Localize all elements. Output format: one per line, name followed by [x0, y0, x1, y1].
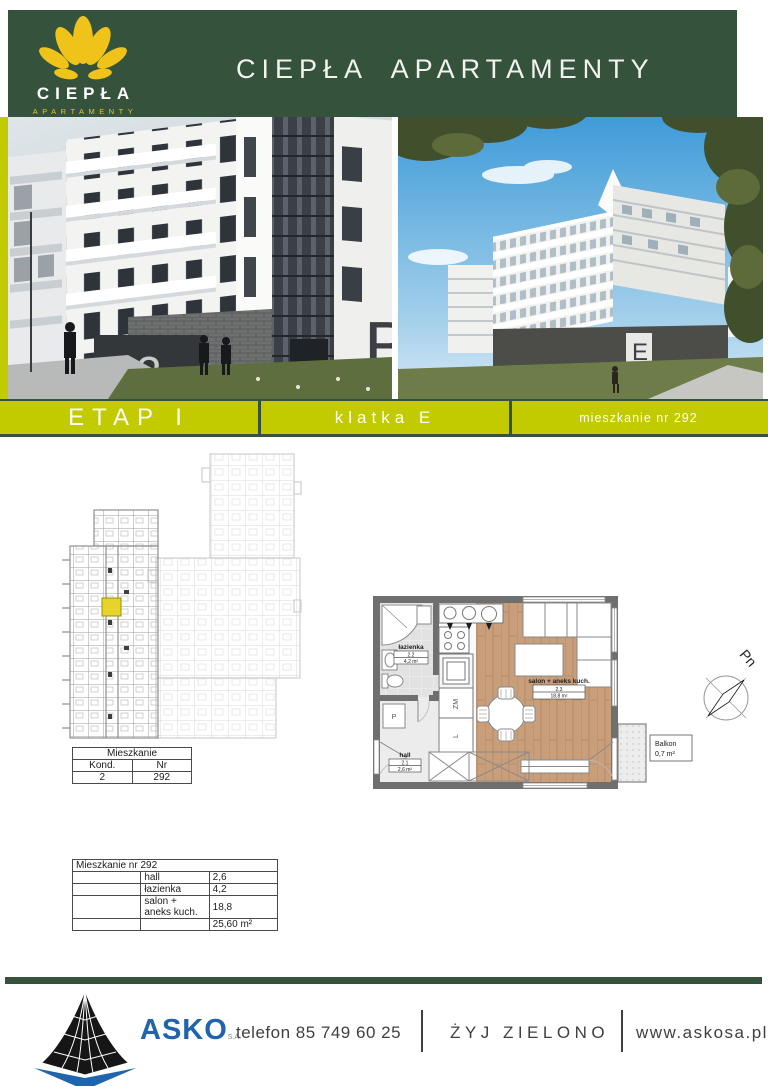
details-empty-cell — [73, 884, 141, 896]
hall-area: 2,6 m² — [398, 767, 413, 773]
details-empty-cell — [73, 896, 141, 919]
bathroom-label: łazienka — [398, 644, 424, 651]
flyer-page: CIEPŁA APARTAMENTY CIEPŁA APARTAMENTY — [0, 0, 768, 1087]
footer-phone: telefon 85 749 60 25 — [236, 1023, 401, 1043]
details-room-name: łazienka — [141, 884, 209, 896]
apartment-floor-plan: P ZM L — [373, 592, 693, 812]
details-empty-cell — [73, 872, 141, 884]
building-render-aerial-view: E — [398, 117, 763, 399]
location-nr-value: 292 — [132, 772, 192, 784]
details-empty-cell — [73, 919, 141, 931]
lotus-flower-icon — [28, 12, 138, 86]
banner-mieszkanie: mieszkanie nr 292 — [509, 401, 765, 434]
balcony-label: Balkon — [655, 741, 677, 748]
logo-subtitle: APARTAMENTY — [18, 107, 148, 116]
page-title: CIEPŁA APARTAMENTY — [236, 54, 655, 85]
location-table: Mieszkanie Kond. Nr 2 292 — [72, 747, 192, 784]
details-room-name: salon + aneks kuch. — [141, 896, 209, 919]
details-room-value: 2,6 — [209, 872, 277, 884]
dishwasher-label: ZM — [453, 699, 460, 709]
details-room-value: 4,2 — [209, 884, 277, 896]
asko-building-icon — [28, 990, 140, 1087]
hall-number: 2.1 — [402, 761, 409, 767]
banner-bars: ETAP I klatka E mieszkanie nr 292 — [0, 399, 768, 437]
details-total-area: 25,60 m² — [209, 919, 277, 931]
yellow-side-strip — [0, 117, 8, 399]
footer-divider-bar — [5, 977, 762, 984]
details-room-value: 18,8 — [209, 896, 277, 919]
fridge-label: L — [453, 734, 460, 738]
highlighted-unit-292 — [102, 598, 121, 616]
asko-brand-name: ASKOS.A. — [140, 1014, 241, 1047]
footer-separator — [621, 1010, 623, 1052]
living-room-area: 18,8 m² — [551, 694, 568, 700]
location-table-title: Mieszkanie — [73, 748, 192, 760]
living-room-number: 2.3 — [556, 687, 563, 693]
location-kond-value: 2 — [73, 772, 133, 784]
footer: ASKOS.A. telefon 85 749 60 25 ŻYJ ZIELON… — [0, 984, 768, 1087]
compass-north-indicator: Pn — [696, 638, 768, 735]
footer-website: www.askosa.pl — [636, 1023, 768, 1043]
building-overview-plan — [58, 450, 303, 747]
details-table-title: Mieszkanie nr 292 — [73, 860, 278, 872]
living-room-label: salon + aneks kuch. — [528, 678, 590, 685]
header: CIEPŁA APARTAMENTY CIEPŁA APARTAMENTY — [8, 10, 737, 117]
location-col-kond: Kond. — [73, 760, 133, 772]
footer-separator — [421, 1010, 423, 1052]
apartment-details-table: Mieszkanie nr 292 hall 2,6 łazienka 4,2 … — [72, 859, 278, 931]
details-empty-cell — [141, 919, 209, 931]
details-room-name: hall — [141, 872, 209, 884]
banner-etap: ETAP I — [0, 401, 258, 434]
bathroom-area: 4,2 m² — [404, 659, 419, 665]
hall-label: hall — [399, 752, 410, 759]
location-col-nr: Nr — [132, 760, 192, 772]
bathroom-number: 2.2 — [408, 653, 415, 659]
banner-klatka: klatka E — [258, 401, 509, 434]
footer-slogan: ŻYJ ZIELONO — [450, 1023, 609, 1043]
north-label: Pn — [737, 646, 760, 669]
logo-name: CIEPŁA — [18, 84, 148, 104]
balcony-area: 0,7 m² — [655, 751, 676, 758]
building-render-street-view: B 2 — [8, 117, 392, 399]
washer-label: P — [392, 714, 397, 721]
brand-logo: CIEPŁA APARTAMENTY — [18, 12, 148, 117]
